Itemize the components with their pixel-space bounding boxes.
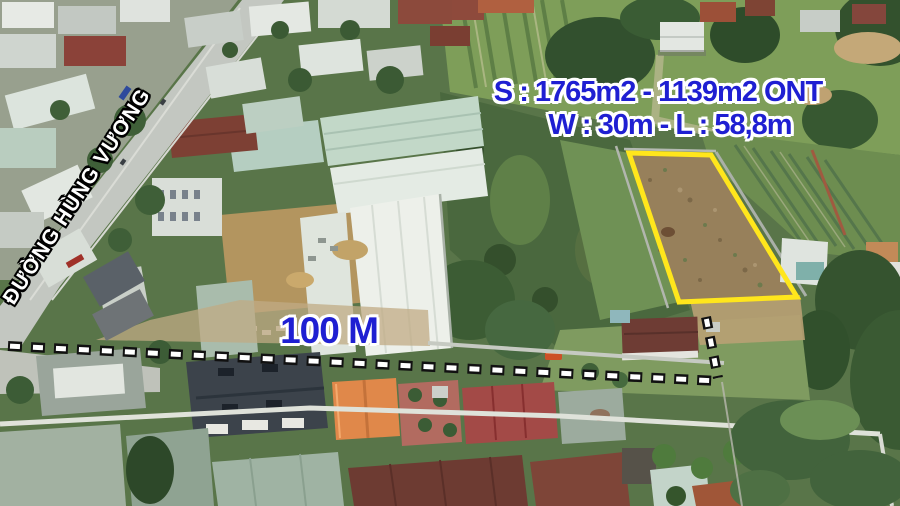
distance-label: 100 M xyxy=(280,312,378,349)
area-label: S : 1765m2 - 1139m2 ONT xyxy=(494,78,822,107)
size-label: W : 30m - L : 58,8m xyxy=(548,111,791,140)
aerial-photo-canvas: S : 1765m2 - 1139m2 ONT W : 30m - L : 58… xyxy=(0,0,900,506)
